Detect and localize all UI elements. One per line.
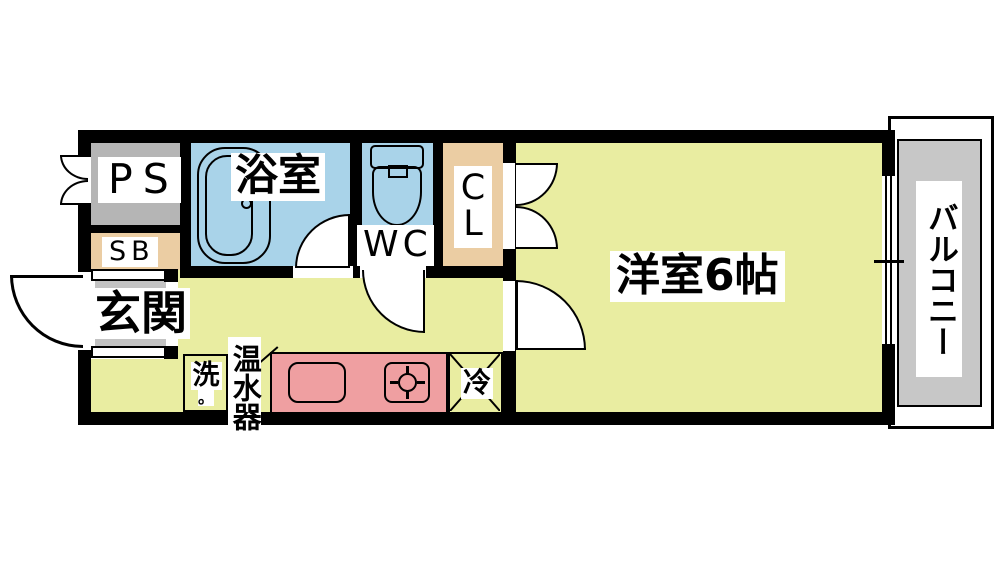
burner-tick (390, 381, 398, 384)
wall-segment (91, 225, 180, 233)
label-entrance: 玄関 (92, 288, 190, 339)
kitchen-sink (288, 362, 346, 403)
window-center-tick (874, 260, 904, 263)
label-water-heater: 温水器 (228, 337, 261, 438)
label-washer-mark: 。 (198, 390, 214, 406)
closet-door-frame (503, 162, 516, 250)
label-ps: PS (98, 157, 181, 203)
label-sb: SB (102, 237, 158, 267)
meterbox-door-bottom (60, 180, 88, 205)
label-bath: 浴室 (231, 153, 325, 201)
label-wc: WC (357, 225, 434, 266)
label-closet-char: L (463, 207, 483, 243)
label-washer: 洗 。 (190, 360, 222, 408)
label-closet: C L (454, 166, 492, 248)
entrance-step-edge (91, 269, 166, 281)
label-closet-char: C (461, 171, 485, 207)
meterbox-door-top (60, 155, 88, 180)
entrance-step-edge (91, 346, 166, 358)
stove-burner-icon (398, 373, 417, 392)
wall-segment (433, 143, 443, 278)
room-door-frame (503, 280, 516, 352)
label-western-room: 洋室6帖 (610, 251, 785, 302)
burner-tick (406, 366, 409, 374)
label-balcony: バルコニー (916, 181, 962, 377)
floor-plan: PS SB 浴室 WC C L 玄関 洋室6帖 バルコニー 洗 。 温水器 冷 (0, 0, 1000, 562)
burner-tick (417, 381, 425, 384)
wall-segment (180, 143, 191, 278)
wall-stub (164, 346, 178, 359)
label-washer-char: 洗 (191, 362, 222, 390)
burner-tick (406, 391, 409, 399)
entrance-door-swing (10, 275, 83, 348)
wall-stub (164, 269, 178, 282)
label-refrigerator: 冷 (461, 368, 493, 399)
